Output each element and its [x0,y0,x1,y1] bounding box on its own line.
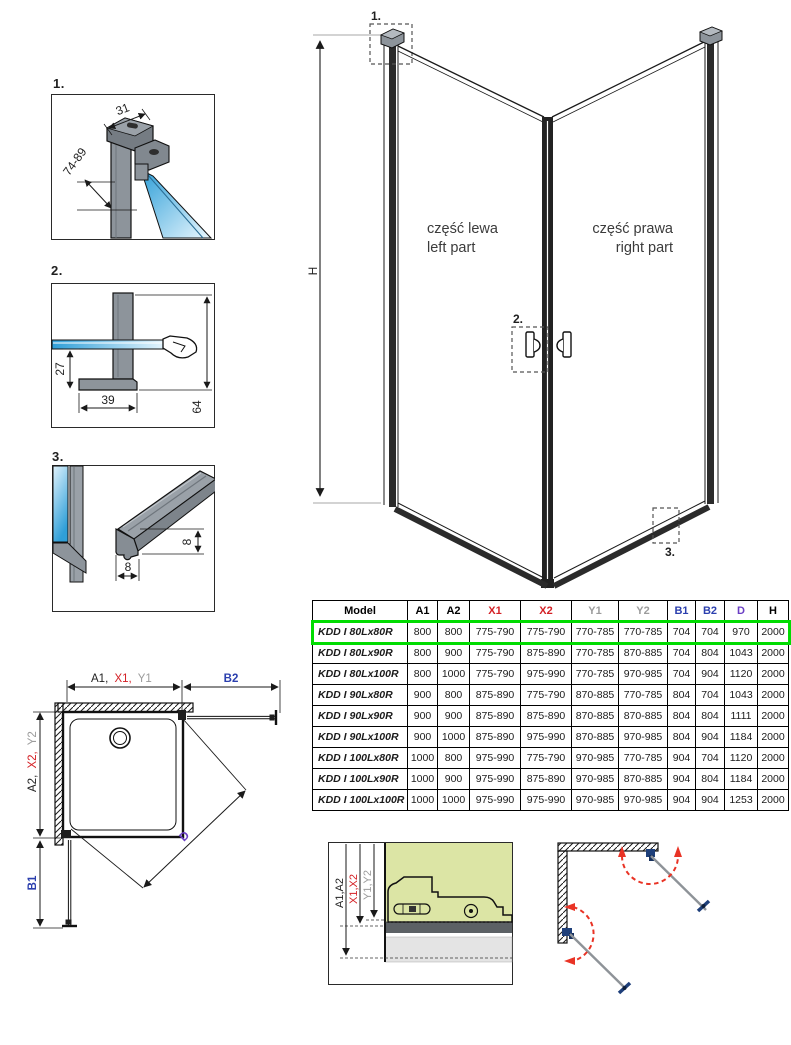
table-row: KDD I 100Lx80R1000800975-990775-790970-9… [313,748,789,769]
value-cell: 870-885 [619,643,668,664]
dim-a2-text: A2, [27,775,39,792]
model-cell: KDD I 80Lx80R [313,622,408,643]
model-cell: KDD I 90Lx90R [313,706,408,727]
detail-2-drawing: 27 39 64 [51,283,215,428]
pivot-bottom-left [61,830,71,838]
d-ext-line-top [183,719,246,790]
value-cell: 704 [668,622,696,643]
dim-x2-text: X2, [27,751,39,768]
spec-table-head-row: ModelA1A2X1X2Y1Y2B1B2DH [313,601,789,622]
value-cell: 770-785 [572,664,619,685]
value-cell: 2000 [758,790,789,811]
column-header: B2 [696,601,725,622]
spec-table-body: KDD I 80Lx80R800800775-790775-790770-785… [313,622,789,811]
left-part-label-pl: część lewa [427,221,499,237]
column-header: A1 [408,601,438,622]
handle-profile-bar [113,293,133,379]
value-cell: 1184 [725,727,758,748]
value-cell: 970-985 [619,664,668,685]
value-cell: 770-785 [619,622,668,643]
detail-2-number: 2. [51,263,63,278]
dim-b1-label: B1 [27,875,39,890]
column-header: Model [313,601,408,622]
value-cell: 800 [438,685,470,706]
dim27-label: 27 [53,362,67,376]
right-part-label-pl: część prawa [592,221,674,237]
callout-1-label: 1. [371,9,381,23]
glass-strip [52,340,170,349]
screw-center [469,909,473,913]
value-cell: 1000 [408,748,438,769]
column-header: H [758,601,789,622]
bracket-lower [135,164,148,180]
value-cell: 1000 [438,790,470,811]
value-cell: 800 [408,622,438,643]
table-row: KDD I 100Lx90R1000900975-990875-890970-9… [313,769,789,790]
section-dim-y-label: Y1,Y2 [362,870,374,900]
value-cell: 2000 [758,685,789,706]
rail-section-drawing: A1,A2 X1,X2 Y1,Y2 [328,842,513,985]
dim64-label: 64 [190,400,204,414]
value-cell: 800 [438,622,470,643]
value-cell: 900 [438,769,470,790]
value-cell: 775-790 [470,643,521,664]
value-cell: 2000 [758,706,789,727]
h-dimension-label: H [306,267,320,276]
right-door-handle-nub [270,715,275,721]
pivot-top-right [178,710,186,720]
right-door-handle-knob [702,904,706,908]
table-row: KDD I 90Lx90R900900875-890875-890870-885… [313,706,789,727]
value-cell: 775-790 [521,748,572,769]
value-cell: 1043 [725,643,758,664]
table-row: KDD I 90Lx100R9001000875-890975-990870-8… [313,727,789,748]
value-cell: 1253 [725,790,758,811]
handle-profile-foot [79,379,137,390]
left-part-label-en: left part [427,240,475,256]
right-glass-bottom-edge [554,501,705,578]
value-cell: 804 [668,685,696,706]
table-row: KDD I 80Lx90R800900775-790875-890770-785… [313,643,789,664]
model-cell: KDD I 80Lx100R [313,664,408,685]
value-cell: 870-885 [619,769,668,790]
detail-3-number: 3. [52,449,64,464]
section-dim-a-label: A1,A2 [334,878,346,908]
value-cell: 1111 [725,706,758,727]
value-cell: 1184 [725,769,758,790]
value-cell: 904 [696,664,725,685]
plan-dim-left-label: A2, X2, Y2 [27,731,39,792]
value-cell: 875-890 [521,643,572,664]
value-cell: 900 [438,643,470,664]
value-cell: 900 [438,706,470,727]
value-cell: 875-890 [470,706,521,727]
value-cell: 975-990 [470,769,521,790]
value-cell: 775-790 [521,622,572,643]
value-cell: 2000 [758,622,789,643]
plan-view-drawing: D A1, X1, Y1 B2 A2, X2, Y2 B1 [25,665,310,985]
left-glass-top-edge [398,46,544,117]
rail-profile-strip [385,922,512,933]
value-cell: 870-885 [619,706,668,727]
wall-top [58,703,193,712]
value-cell: 875-890 [521,706,572,727]
model-cell: KDD I 100Lx90R [313,769,408,790]
swing-arrow-left-door-bottom [564,957,575,965]
dim-y2-text: Y2 [27,731,39,745]
model-cell: KDD I 80Lx90R [313,643,408,664]
value-cell: 770-785 [572,643,619,664]
door-swing-diagram [545,835,791,1010]
value-cell: 704 [696,622,725,643]
column-header: D [725,601,758,622]
section-dim-x-label: X1,X2 [348,874,360,904]
value-cell: 904 [668,748,696,769]
value-cell: 870-885 [572,727,619,748]
right-part-label-en: right part [616,240,673,256]
technical-sheet: H 1. [0,0,791,1045]
right-wall-profile [707,38,714,504]
model-cell: KDD I 90Lx80R [313,685,408,706]
model-cell: KDD I 100Lx80R [313,748,408,769]
value-cell: 900 [408,727,438,748]
value-cell: 704 [668,643,696,664]
left-door-panel [570,934,625,988]
bracket-hole [149,149,159,155]
value-cell: 2000 [758,748,789,769]
value-cell: 804 [668,727,696,748]
value-cell: 870-885 [572,706,619,727]
main-enclosure-drawing: H 1. [305,5,791,590]
value-cell: 800 [408,664,438,685]
value-cell: 1000 [438,727,470,748]
value-cell: 975-990 [521,664,572,685]
right-glass-top-edge2 [553,47,705,122]
detail-1-number: 1. [53,76,65,91]
value-cell: 775-790 [521,685,572,706]
value-cell: 2000 [758,664,789,685]
value-cell: 900 [408,685,438,706]
value-cell: 804 [696,643,725,664]
shower-tray [63,712,183,837]
table-row: KDD I 100Lx100R10001000975-990975-990970… [313,790,789,811]
value-cell: 704 [696,748,725,769]
swing-arrow-right-door-right [674,846,682,857]
right-door-panel [651,856,706,910]
value-cell: 875-890 [470,685,521,706]
value-cell: 975-990 [521,727,572,748]
value-cell: 970-985 [619,790,668,811]
value-cell: 975-990 [470,748,521,769]
value-cell: 704 [696,685,725,706]
column-header: X2 [521,601,572,622]
value-cell: 1000 [438,664,470,685]
detail-1-drawing: 31 74-89 [51,94,215,240]
left-threshold [395,509,547,586]
left-door-handle [526,332,540,357]
value-cell: 770-785 [572,622,619,643]
value-cell: 775-790 [470,664,521,685]
value-cell: 1000 [408,769,438,790]
value-cell: 770-785 [619,748,668,769]
dim8h-label: 8 [125,560,132,574]
value-cell: 800 [408,643,438,664]
value-cell: 770-785 [619,685,668,706]
left-glass-bottom-edge [398,503,544,578]
value-cell: 904 [668,769,696,790]
left-wall-profile [389,41,396,507]
right-door-handle [557,332,571,357]
value-cell: 875-890 [521,769,572,790]
value-cell: 1000 [408,790,438,811]
left-door-handle-knob [623,986,627,990]
model-cell: KDD I 100Lx100R [313,790,408,811]
plan-dim-top-label: A1, X1, Y1 [91,673,152,685]
value-cell: 975-990 [470,790,521,811]
value-cell: 1120 [725,748,758,769]
column-header: A2 [438,601,470,622]
value-cell: 800 [438,748,470,769]
table-row: KDD I 80Lx80R800800775-790775-790770-785… [313,622,789,643]
spec-table: ModelA1A2X1X2Y1Y2B1B2DH KDD I 80Lx80R800… [312,600,789,811]
value-cell: 970-985 [572,769,619,790]
value-cell: 900 [408,706,438,727]
right-threshold [554,507,709,586]
value-cell: 704 [668,664,696,685]
dim8v-label: 8 [180,538,194,545]
value-cell: 775-790 [470,622,521,643]
value-cell: 875-890 [470,727,521,748]
dim-b2-label: B2 [224,673,239,685]
value-cell: 804 [696,769,725,790]
column-header: B1 [668,601,696,622]
value-cell: 804 [668,706,696,727]
value-cell: 870-885 [572,685,619,706]
value-cell: 904 [696,790,725,811]
slot-block [409,906,416,912]
callout-2-label: 2. [513,312,523,326]
value-cell: 970-985 [619,727,668,748]
value-cell: 975-990 [521,790,572,811]
left-glass-top-edge2 [398,51,543,122]
dim-x1-text: X1, [114,673,131,685]
value-cell: 970-985 [572,790,619,811]
value-cell: 1120 [725,664,758,685]
bottom-door-handle-nub [66,920,72,925]
column-header: X1 [470,601,521,622]
value-cell: 2000 [758,727,789,748]
value-cell: 970 [725,622,758,643]
value-cell: 970-985 [572,748,619,769]
column-header: Y1 [572,601,619,622]
column-header: Y2 [619,601,668,622]
value-cell: 804 [696,706,725,727]
dim-y1-text: Y1 [138,673,152,685]
glass-panel-left [53,466,68,542]
right-glass-top-edge [552,42,704,117]
value-cell: 904 [696,727,725,748]
table-row: KDD I 80Lx100R8001000775-790975-990770-7… [313,664,789,685]
dim-a1-text: A1, [91,673,108,685]
table-row: KDD I 90Lx80R900800875-890775-790870-885… [313,685,789,706]
value-cell: 2000 [758,643,789,664]
dim39-label: 39 [101,393,115,407]
value-cell: 904 [668,790,696,811]
detail-3-drawing: 8 8 [52,465,215,612]
value-cell: 2000 [758,769,789,790]
callout-3-label: 3. [665,545,675,559]
value-cell: 1043 [725,685,758,706]
model-cell: KDD I 90Lx100R [313,727,408,748]
swing-wall-top [558,843,658,851]
